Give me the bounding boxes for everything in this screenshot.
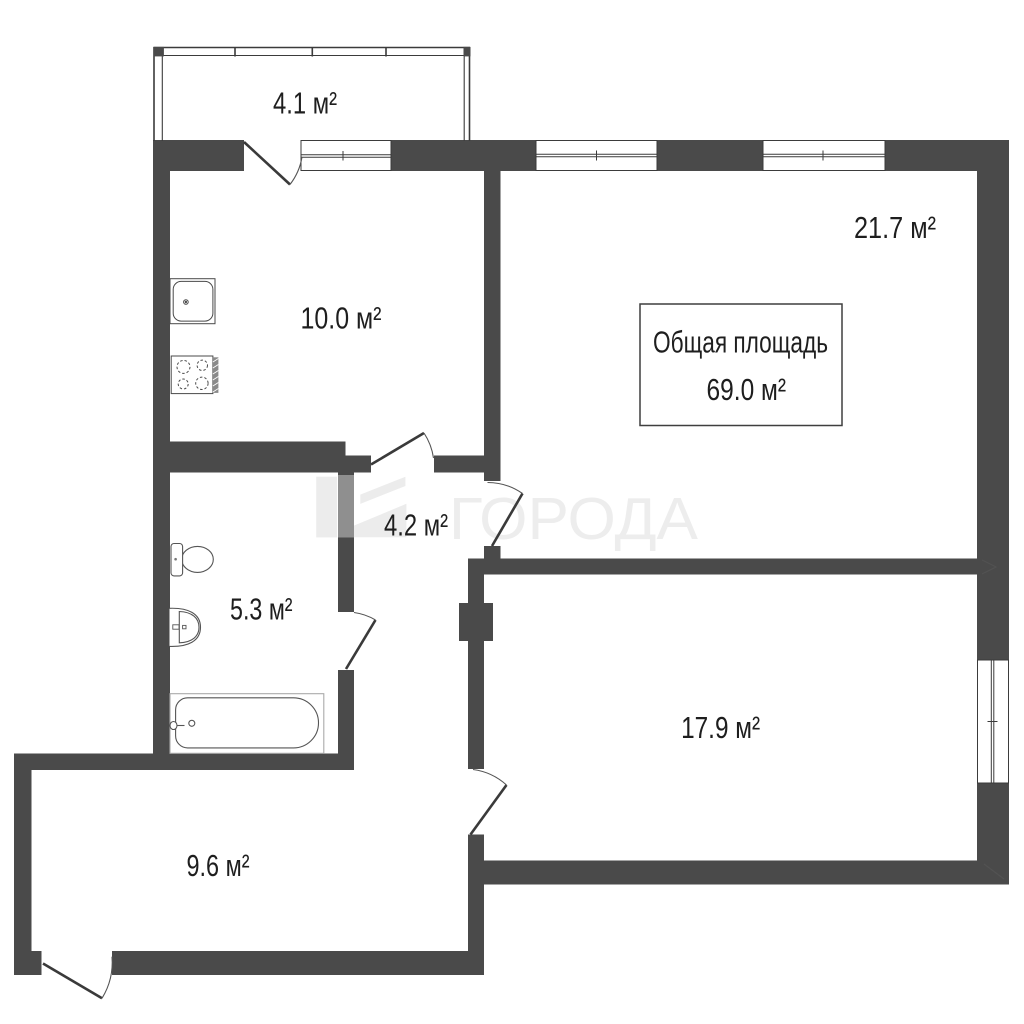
svg-text:17.9 м²: 17.9 м² [681, 710, 760, 745]
svg-text:4.1 м²: 4.1 м² [273, 86, 337, 121]
svg-text:21.7 м²: 21.7 м² [854, 210, 936, 245]
svg-text:ГОРОДА: ГОРОДА [449, 486, 699, 552]
svg-text:9.6 м²: 9.6 м² [187, 848, 250, 883]
svg-text:69.0 м²: 69.0 м² [707, 372, 787, 407]
svg-text:4.2 м²: 4.2 м² [384, 508, 448, 543]
svg-text:5.3 м²: 5.3 м² [230, 592, 293, 627]
svg-text:10.0 м²: 10.0 м² [301, 301, 382, 336]
svg-text:Общая площадь: Общая площадь [653, 325, 828, 360]
